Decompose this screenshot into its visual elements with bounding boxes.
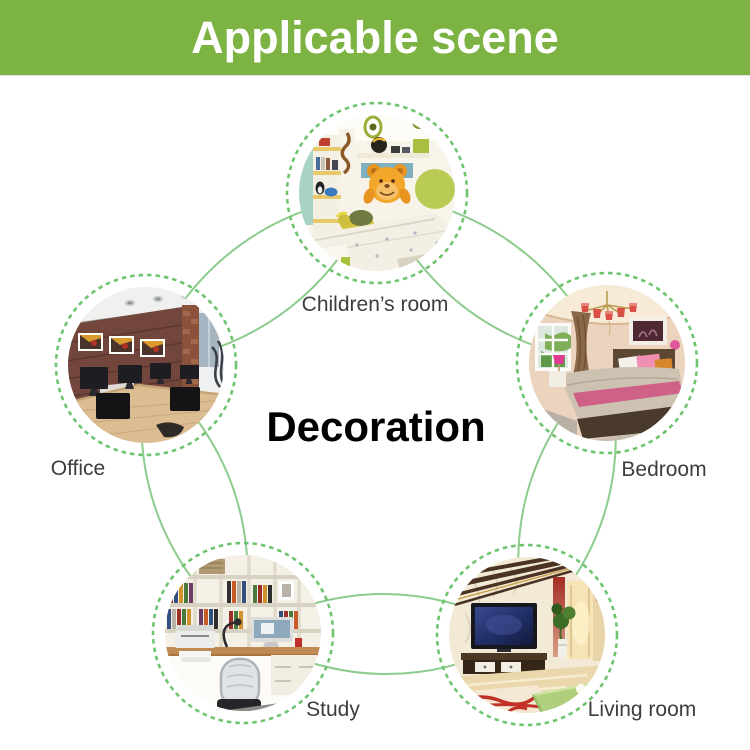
living-room-photo <box>447 555 607 715</box>
center-title: Decoration <box>266 405 485 449</box>
page-title: Applicable scene <box>191 12 559 64</box>
office-photo <box>66 285 226 445</box>
page: Applicable scene <box>0 0 750 750</box>
node-label-bedroom: Bedroom <box>621 459 706 481</box>
children-room-photo <box>297 113 457 273</box>
node-children-room <box>287 103 467 283</box>
node-label-children-room: Children’s room <box>302 294 449 316</box>
study-photo <box>163 553 323 713</box>
header-banner: Applicable scene <box>0 0 750 76</box>
node-bedroom <box>517 273 697 453</box>
tv-illustration <box>471 603 537 652</box>
teddy-bear-illustration <box>362 164 413 205</box>
node-study <box>153 543 333 723</box>
diagram-area: Decoration Children’s room Office Bedroo… <box>0 75 750 750</box>
bedroom-photo <box>527 283 687 443</box>
node-label-office: Office <box>51 458 105 480</box>
node-office <box>56 275 236 455</box>
node-label-living-room: Living room <box>588 699 697 721</box>
office-chair-illustration <box>217 659 261 711</box>
node-label-study: Study <box>306 699 360 721</box>
